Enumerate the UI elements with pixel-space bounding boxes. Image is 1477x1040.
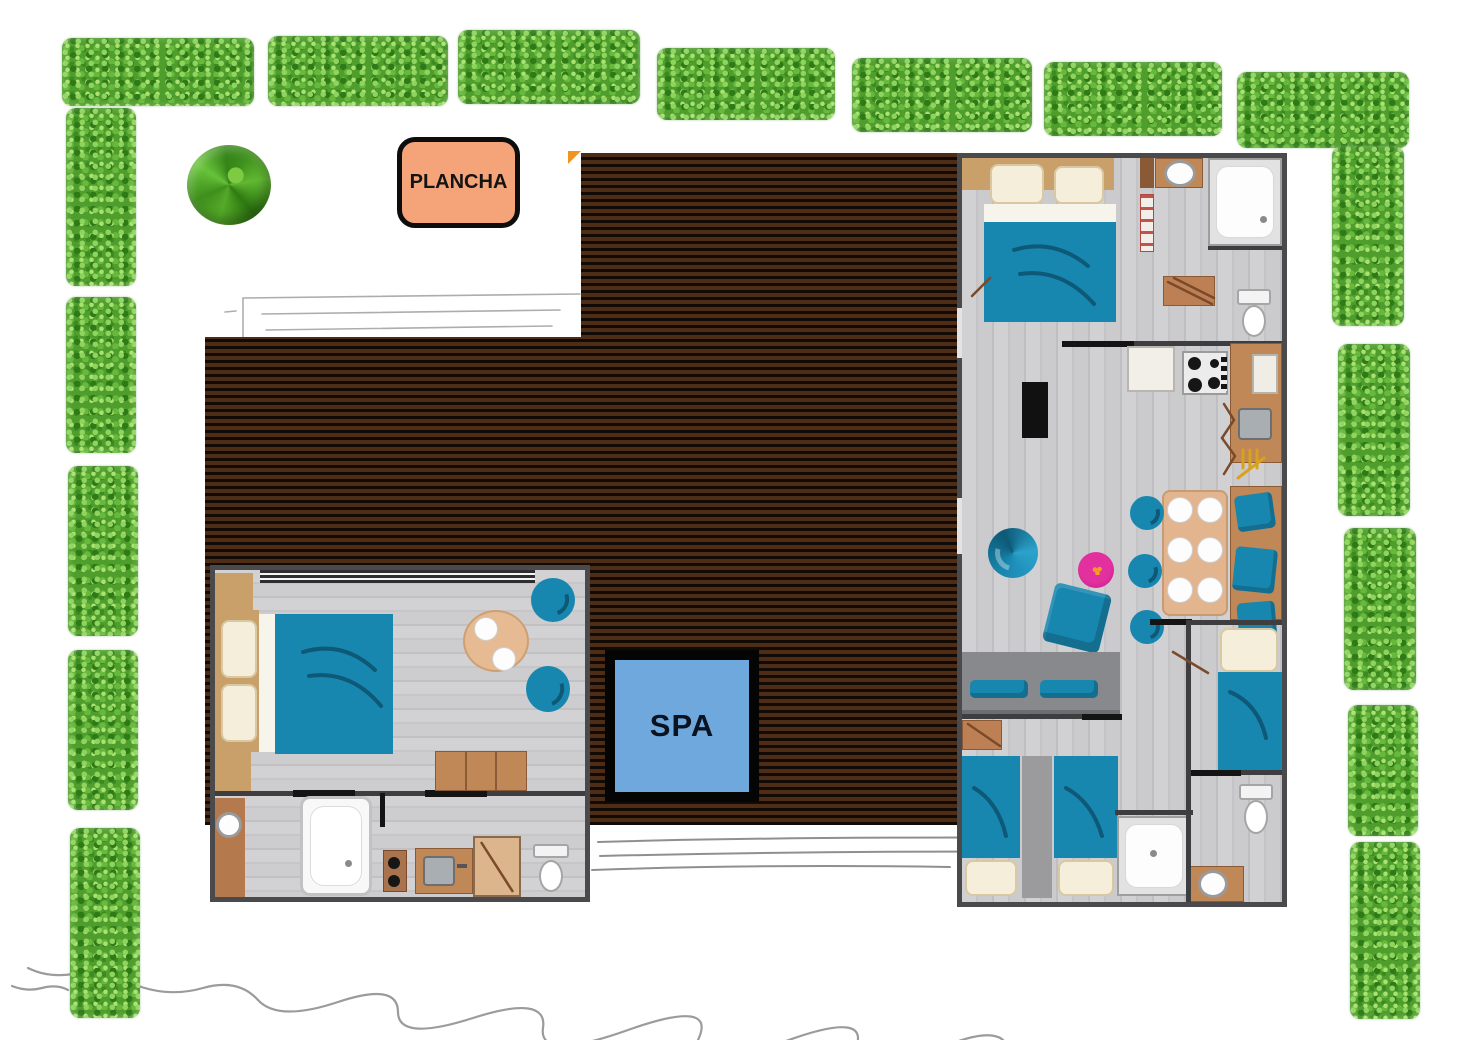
building-line-art bbox=[215, 570, 585, 897]
hedge-top-7 bbox=[1237, 72, 1409, 148]
plancha-griddle: PLANCHA bbox=[397, 137, 520, 228]
hedge-right-4 bbox=[1348, 705, 1418, 836]
hedge-right-2 bbox=[1338, 344, 1410, 516]
building-line-art bbox=[962, 158, 1282, 902]
tree bbox=[187, 145, 271, 225]
large-mobile-home bbox=[957, 153, 1287, 907]
hedge-right-3 bbox=[1344, 528, 1416, 690]
hedge-top-4 bbox=[657, 48, 835, 120]
plancha-label: PLANCHA bbox=[410, 171, 508, 194]
hedge-left-4 bbox=[68, 650, 138, 810]
spa: SPA bbox=[605, 650, 759, 802]
hedge-right-1 bbox=[1332, 146, 1404, 326]
spa-label: SPA bbox=[650, 708, 714, 744]
campsite-floor-plan: PLANCHA SPA bbox=[0, 0, 1477, 1040]
hedge-left-5 bbox=[70, 828, 140, 1018]
hedge-top-5 bbox=[852, 58, 1032, 132]
hedge-left-2 bbox=[66, 297, 136, 453]
hedge-top-1 bbox=[62, 38, 254, 106]
hedge-right-5 bbox=[1350, 842, 1420, 1019]
deck-corner-marker bbox=[568, 151, 581, 164]
hedge-left-1 bbox=[66, 108, 136, 286]
hedge-top-2 bbox=[268, 36, 448, 106]
small-mobile-home bbox=[210, 565, 590, 902]
hedge-left-3 bbox=[68, 466, 138, 636]
hedge-top-3 bbox=[458, 30, 640, 104]
hedge-top-6 bbox=[1044, 62, 1222, 136]
